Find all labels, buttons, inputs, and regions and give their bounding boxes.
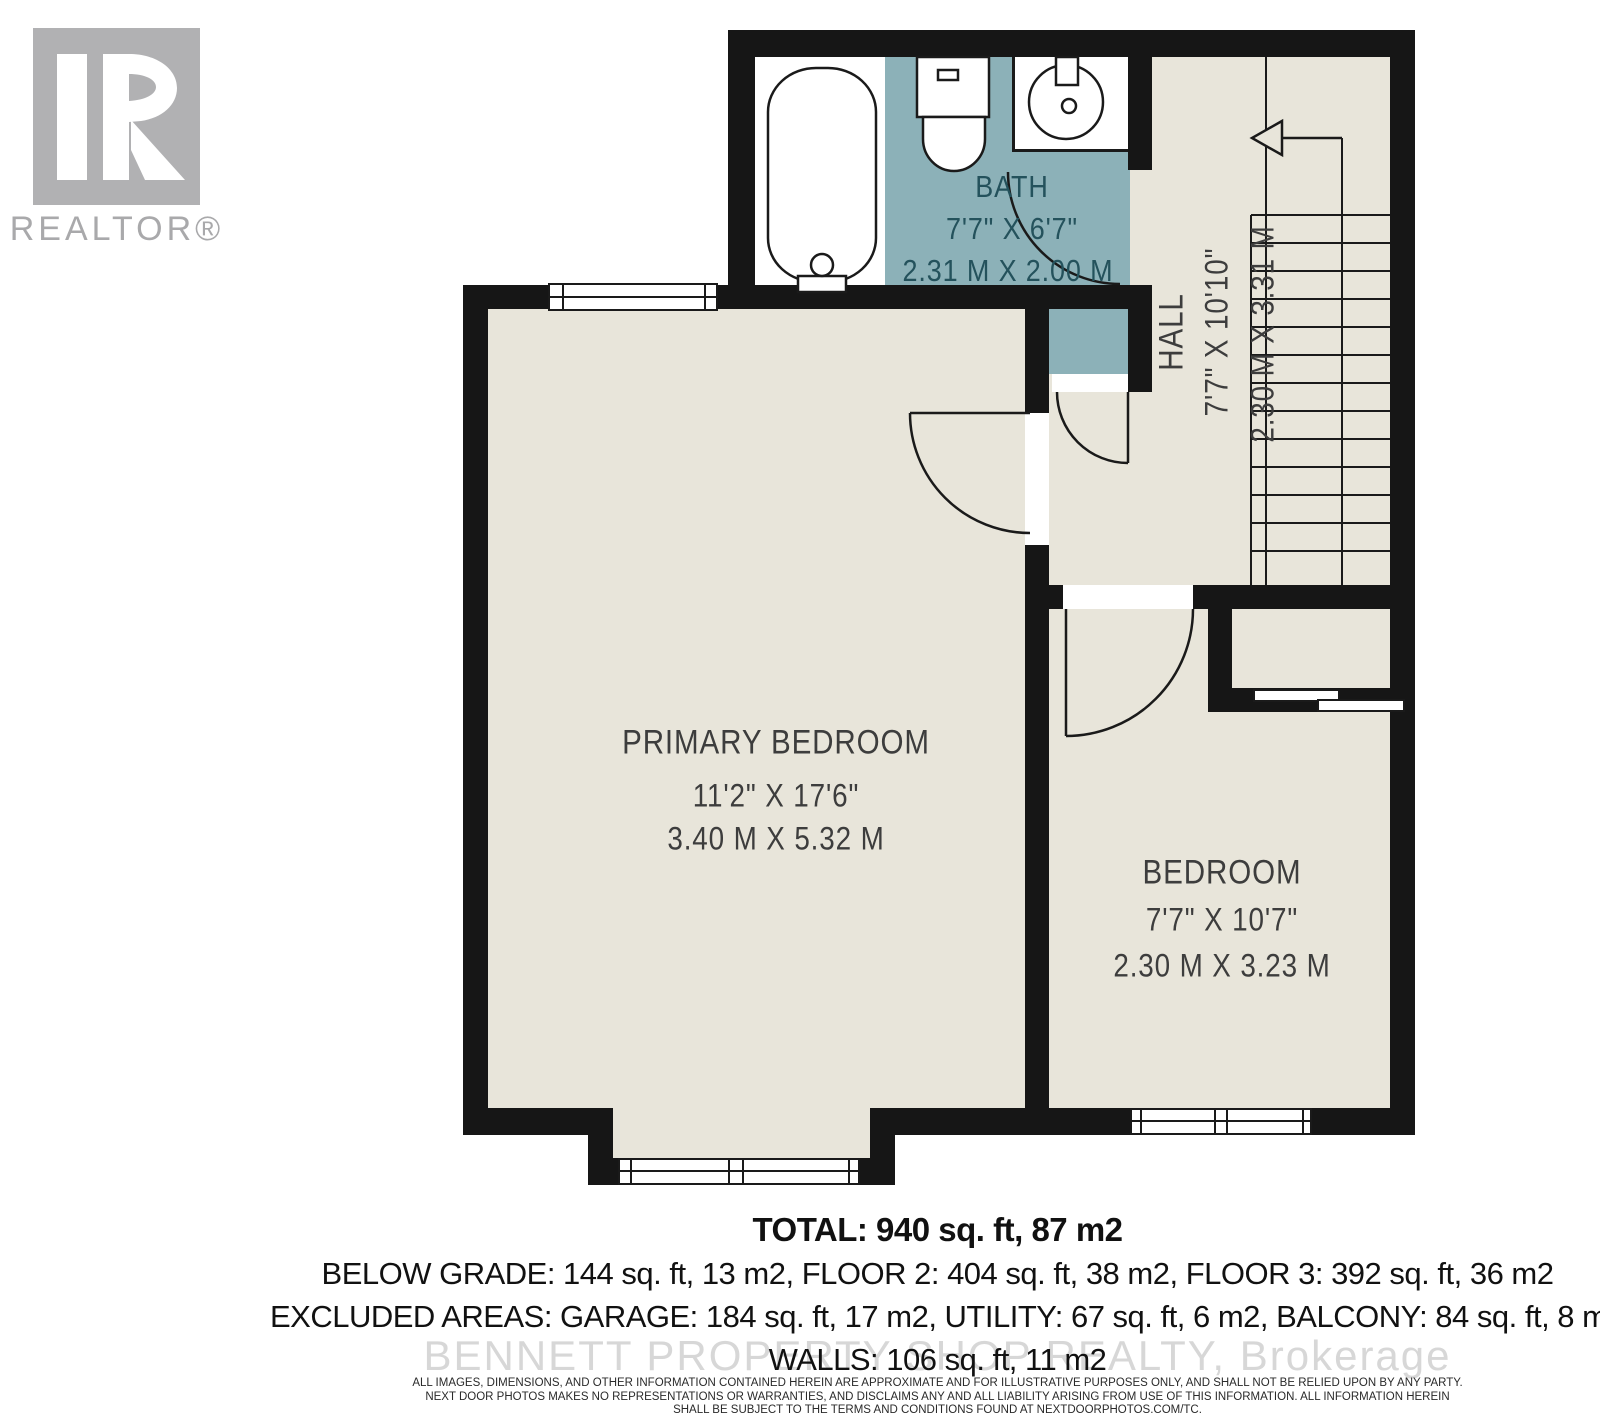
disclaimer-line1: ALL IMAGES, DIMENSIONS, AND OTHER INFORM… [270,1377,1600,1391]
toilet-icon [917,57,989,171]
bath-label: BATH [975,169,1048,205]
summary-walls: WALLS: 106 sq. ft, 11 m2 [270,1338,1600,1381]
summary-grades: BELOW GRADE: 144 sq. ft, 13 m2, FLOOR 2:… [270,1252,1600,1295]
disclaimer: ALL IMAGES, DIMENSIONS, AND OTHER INFORM… [270,1377,1600,1417]
hall-label: HALL [1153,293,1192,370]
summary-total: TOTAL: 940 sq. ft, 87 m2 [270,1208,1600,1252]
disclaimer-line3: SHALL BE SUBJECT TO THE TERMS AND CONDIT… [270,1404,1600,1417]
bath-dims-ft: 7'7" X 6'7" [946,211,1078,247]
primary-bedroom-dims-m: 3.40 M X 5.32 M [667,821,884,858]
sink-icon [1029,57,1103,139]
disclaimer-line2: NEXT DOOR PHOTOS MAKES NO REPRESENTATION… [270,1391,1600,1405]
floor-plan-page: BATH 7'7" X 6'7" 2.31 M X 2.00 M HALL 7'… [0,0,1600,1417]
bedroom-dims-ft: 7'7" X 10'7" [1146,902,1298,939]
primary-bedroom-dims-ft: 11'2" X 17'6" [693,778,860,815]
bath-dims-m: 2.31 M X 2.00 M [903,253,1114,289]
summary-excluded: EXCLUDED AREAS: GARAGE: 184 sq. ft, 17 m… [270,1295,1600,1338]
hall-dims-ft: 7'7" X 10'10" [1199,248,1236,417]
bedroom-dims-m: 2.30 M X 3.23 M [1113,948,1330,985]
hall-dims-m: 2.30 M X 3.31 M [1245,225,1282,442]
plan-linework [0,0,1600,1417]
bedroom-label: BEDROOM [1143,854,1302,893]
area-summary: TOTAL: 940 sq. ft, 87 m2 BELOW GRADE: 14… [270,1208,1600,1381]
primary-bedroom-label: PRIMARY BEDROOM [622,724,930,763]
bathtub-icon [768,68,876,292]
